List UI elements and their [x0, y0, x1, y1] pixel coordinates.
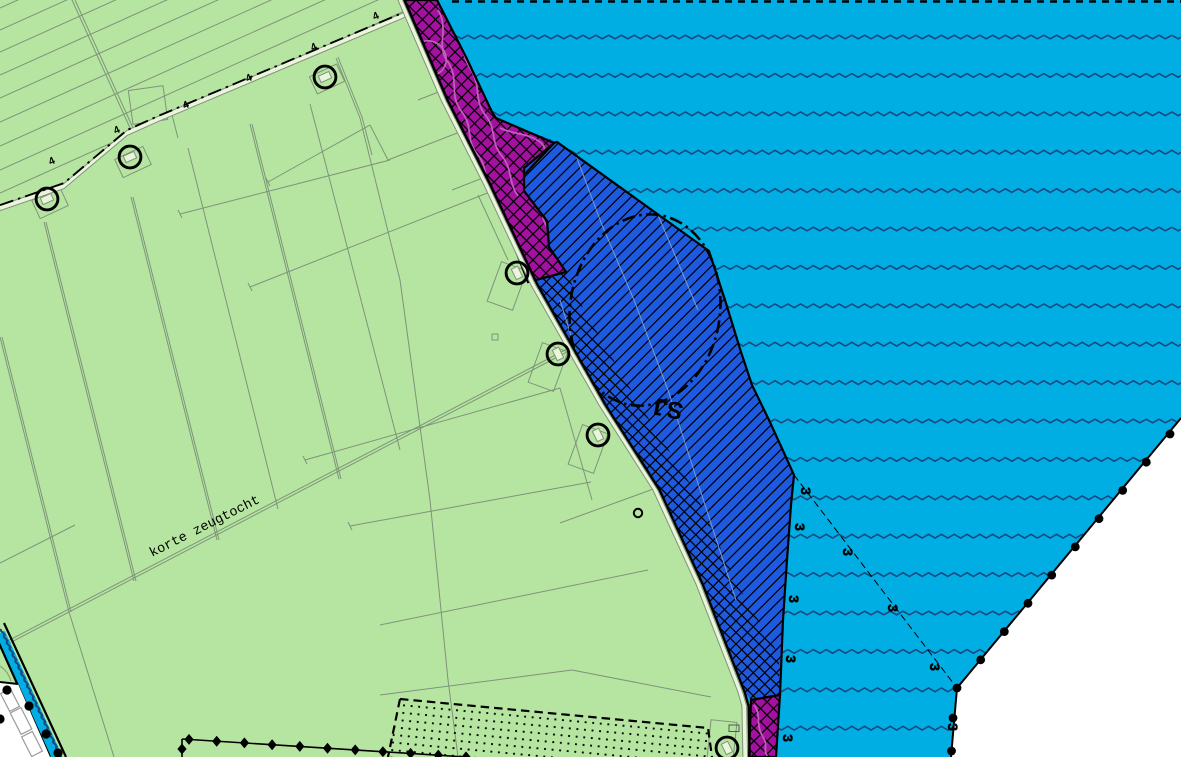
svg-text:3: 3: [783, 655, 799, 663]
svg-text:3: 3: [780, 734, 796, 742]
svg-text:3: 3: [840, 548, 856, 556]
svg-text:3: 3: [927, 663, 943, 671]
svg-text:3: 3: [792, 523, 808, 531]
svg-text:3: 3: [798, 487, 814, 495]
svg-text:3: 3: [885, 604, 901, 612]
svg-text:3: 3: [786, 595, 802, 603]
